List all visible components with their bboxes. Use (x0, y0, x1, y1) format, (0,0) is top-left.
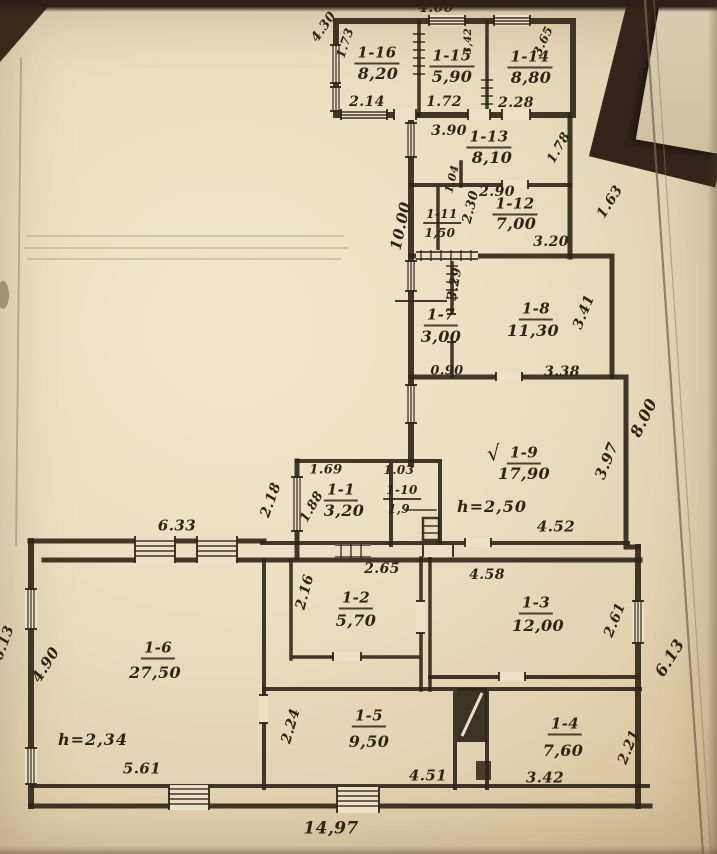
window-wing-c (405, 385, 417, 423)
windows-and-doors (25, 15, 644, 813)
floor-plan-drawing (0, 0, 717, 854)
walls (30, 21, 650, 806)
window-1-6-top-a (135, 536, 175, 563)
door-1-2-right (416, 601, 425, 633)
flue-block (476, 761, 491, 780)
door-1-3-bottom (499, 672, 525, 681)
window-bottom-b (337, 787, 379, 813)
scanned-floor-plan-photo: 1-168,201-155,901-148,801-138,101-127,00… (0, 0, 717, 854)
sill-1-12 (416, 250, 478, 261)
door-1-6 (259, 695, 268, 723)
door-1-15 (468, 109, 490, 120)
sill-band (335, 544, 371, 558)
window-1-16-a (330, 45, 341, 83)
gap-band (423, 545, 453, 557)
door-1-16-1-15 (394, 109, 416, 120)
door-1-13-top (502, 109, 530, 120)
window-1-6-west (25, 589, 37, 629)
door-1-13-bottom (502, 180, 528, 189)
door-1-2-bottom (333, 652, 361, 661)
window-top-2 (494, 15, 530, 26)
window-1-6-west-b (25, 748, 37, 784)
stove-flue (457, 688, 491, 780)
window-wing-b (405, 261, 417, 291)
window-1-16-bottom (341, 109, 387, 120)
paper-artifacts (0, 0, 711, 854)
door-1-8-bottom (496, 372, 522, 381)
window-bottom-a (169, 785, 209, 810)
window-1-16-b (330, 87, 341, 111)
door-1-7-1-8 (447, 314, 456, 342)
window-1-1-west (291, 477, 303, 531)
window-1-3-east (632, 601, 644, 643)
door-1-9-bottom (465, 538, 491, 547)
window-wing-a (405, 123, 417, 157)
window-top-1 (429, 15, 465, 26)
window-1-6-top-b (197, 536, 237, 563)
